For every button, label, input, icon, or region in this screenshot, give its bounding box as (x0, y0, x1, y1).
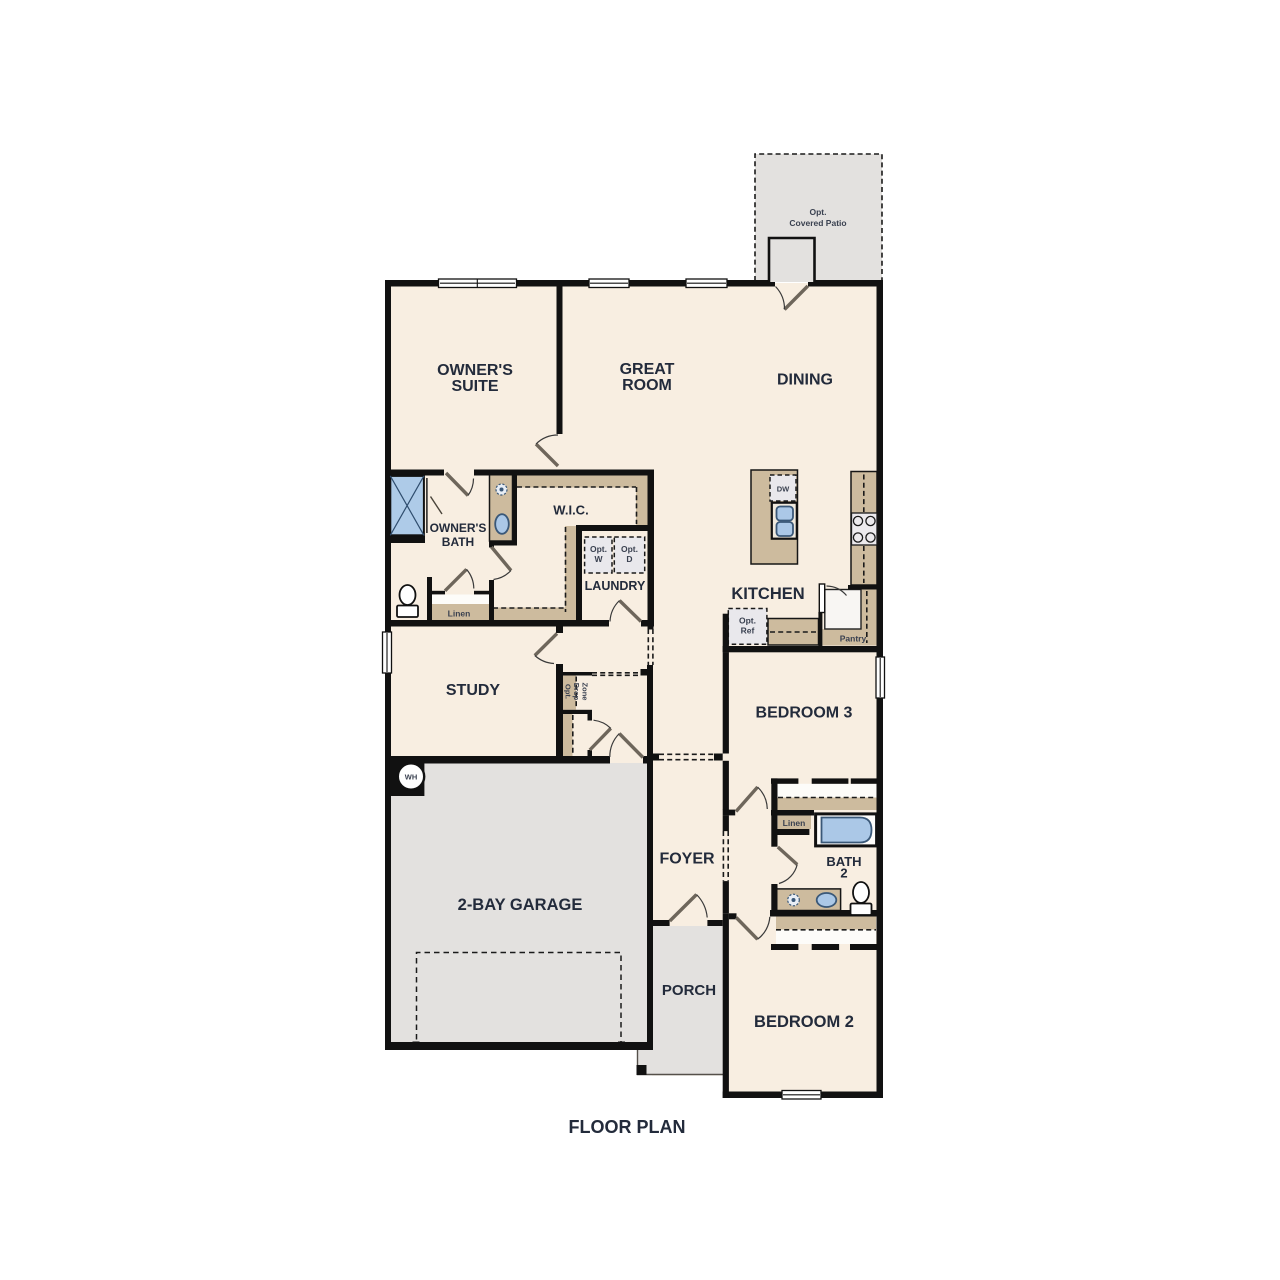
svg-text:Pantry: Pantry (840, 634, 867, 644)
svg-text:LAUNDRY: LAUNDRY (585, 579, 646, 593)
svg-text:Opt.: Opt. (564, 684, 573, 699)
svg-text:D: D (626, 554, 632, 564)
svg-text:Zone: Zone (581, 683, 590, 701)
svg-text:STUDY: STUDY (446, 682, 501, 699)
svg-text:Linen: Linen (448, 609, 471, 619)
svg-text:W.I.C.: W.I.C. (553, 503, 588, 518)
svg-text:ROOM: ROOM (622, 377, 672, 394)
svg-text:PORCH: PORCH (662, 982, 716, 999)
svg-text:Opt.: Opt. (739, 616, 756, 626)
svg-text:DW: DW (777, 485, 790, 494)
svg-text:Opt.: Opt. (810, 207, 827, 217)
svg-text:FOYER: FOYER (659, 851, 715, 868)
svg-text:OWNER'S: OWNER'S (430, 521, 487, 535)
svg-text:W: W (594, 554, 603, 564)
svg-text:2: 2 (840, 866, 847, 881)
svg-text:BATH: BATH (442, 535, 474, 549)
svg-text:BEDROOM 2: BEDROOM 2 (754, 1013, 854, 1031)
svg-text:OWNER'S: OWNER'S (437, 362, 513, 379)
svg-text:2-BAY GARAGE: 2-BAY GARAGE (458, 896, 583, 914)
svg-text:WH: WH (405, 773, 418, 782)
svg-text:GREAT: GREAT (620, 361, 675, 378)
svg-text:Drop: Drop (572, 683, 581, 701)
svg-text:Ref: Ref (741, 626, 755, 636)
svg-text:Linen: Linen (783, 818, 806, 828)
svg-text:BEDROOM 3: BEDROOM 3 (756, 705, 853, 722)
svg-text:Opt.: Opt. (590, 544, 607, 554)
svg-text:KITCHEN: KITCHEN (731, 585, 804, 603)
svg-text:FLOOR PLAN: FLOOR PLAN (569, 1117, 686, 1137)
svg-text:Covered Patio: Covered Patio (789, 218, 846, 228)
svg-text:DINING: DINING (777, 372, 833, 389)
svg-text:Opt.: Opt. (621, 544, 638, 554)
svg-text:SUITE: SUITE (451, 378, 498, 395)
